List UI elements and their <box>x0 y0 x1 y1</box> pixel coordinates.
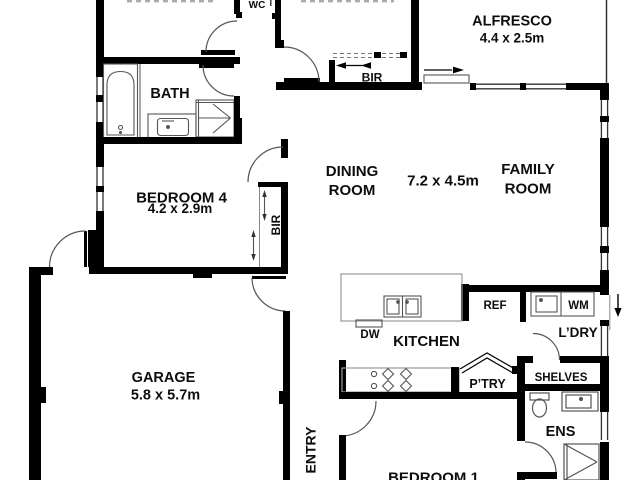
svg-text:ROOM: ROOM <box>505 181 552 198</box>
svg-text:4.4 x 2.5m: 4.4 x 2.5m <box>480 31 545 46</box>
svg-text:ENTRY: ENTRY <box>303 426 319 474</box>
svg-text:DW: DW <box>360 329 379 341</box>
svg-text:5.8 x 5.7m: 5.8 x 5.7m <box>131 388 200 404</box>
svg-text:DINING: DINING <box>326 163 379 180</box>
svg-text:BATH: BATH <box>150 86 189 102</box>
svg-text:REF: REF <box>484 300 507 312</box>
svg-text:4.2 x 2.9m: 4.2 x 2.9m <box>148 201 213 216</box>
svg-text:KITCHEN: KITCHEN <box>393 333 460 350</box>
svg-text:FAMILY: FAMILY <box>501 161 555 178</box>
svg-text:ROOM: ROOM <box>329 182 376 199</box>
svg-text:7.2 x 4.5m: 7.2 x 4.5m <box>407 173 479 190</box>
svg-text:L’DRY: L’DRY <box>558 325 597 340</box>
svg-text:ENS: ENS <box>546 424 576 440</box>
svg-text:P’TRY: P’TRY <box>469 377 506 391</box>
svg-text:BIR: BIR <box>269 214 283 235</box>
svg-text:WC: WC <box>249 0 266 11</box>
svg-text:BIR: BIR <box>362 71 383 85</box>
svg-text:SHELVES: SHELVES <box>535 372 588 384</box>
svg-text:WM: WM <box>568 300 588 312</box>
svg-text:GARAGE: GARAGE <box>132 370 196 386</box>
svg-text:BEDROOM 1: BEDROOM 1 <box>388 470 479 480</box>
svg-text:ALFRESCO: ALFRESCO <box>472 14 552 30</box>
